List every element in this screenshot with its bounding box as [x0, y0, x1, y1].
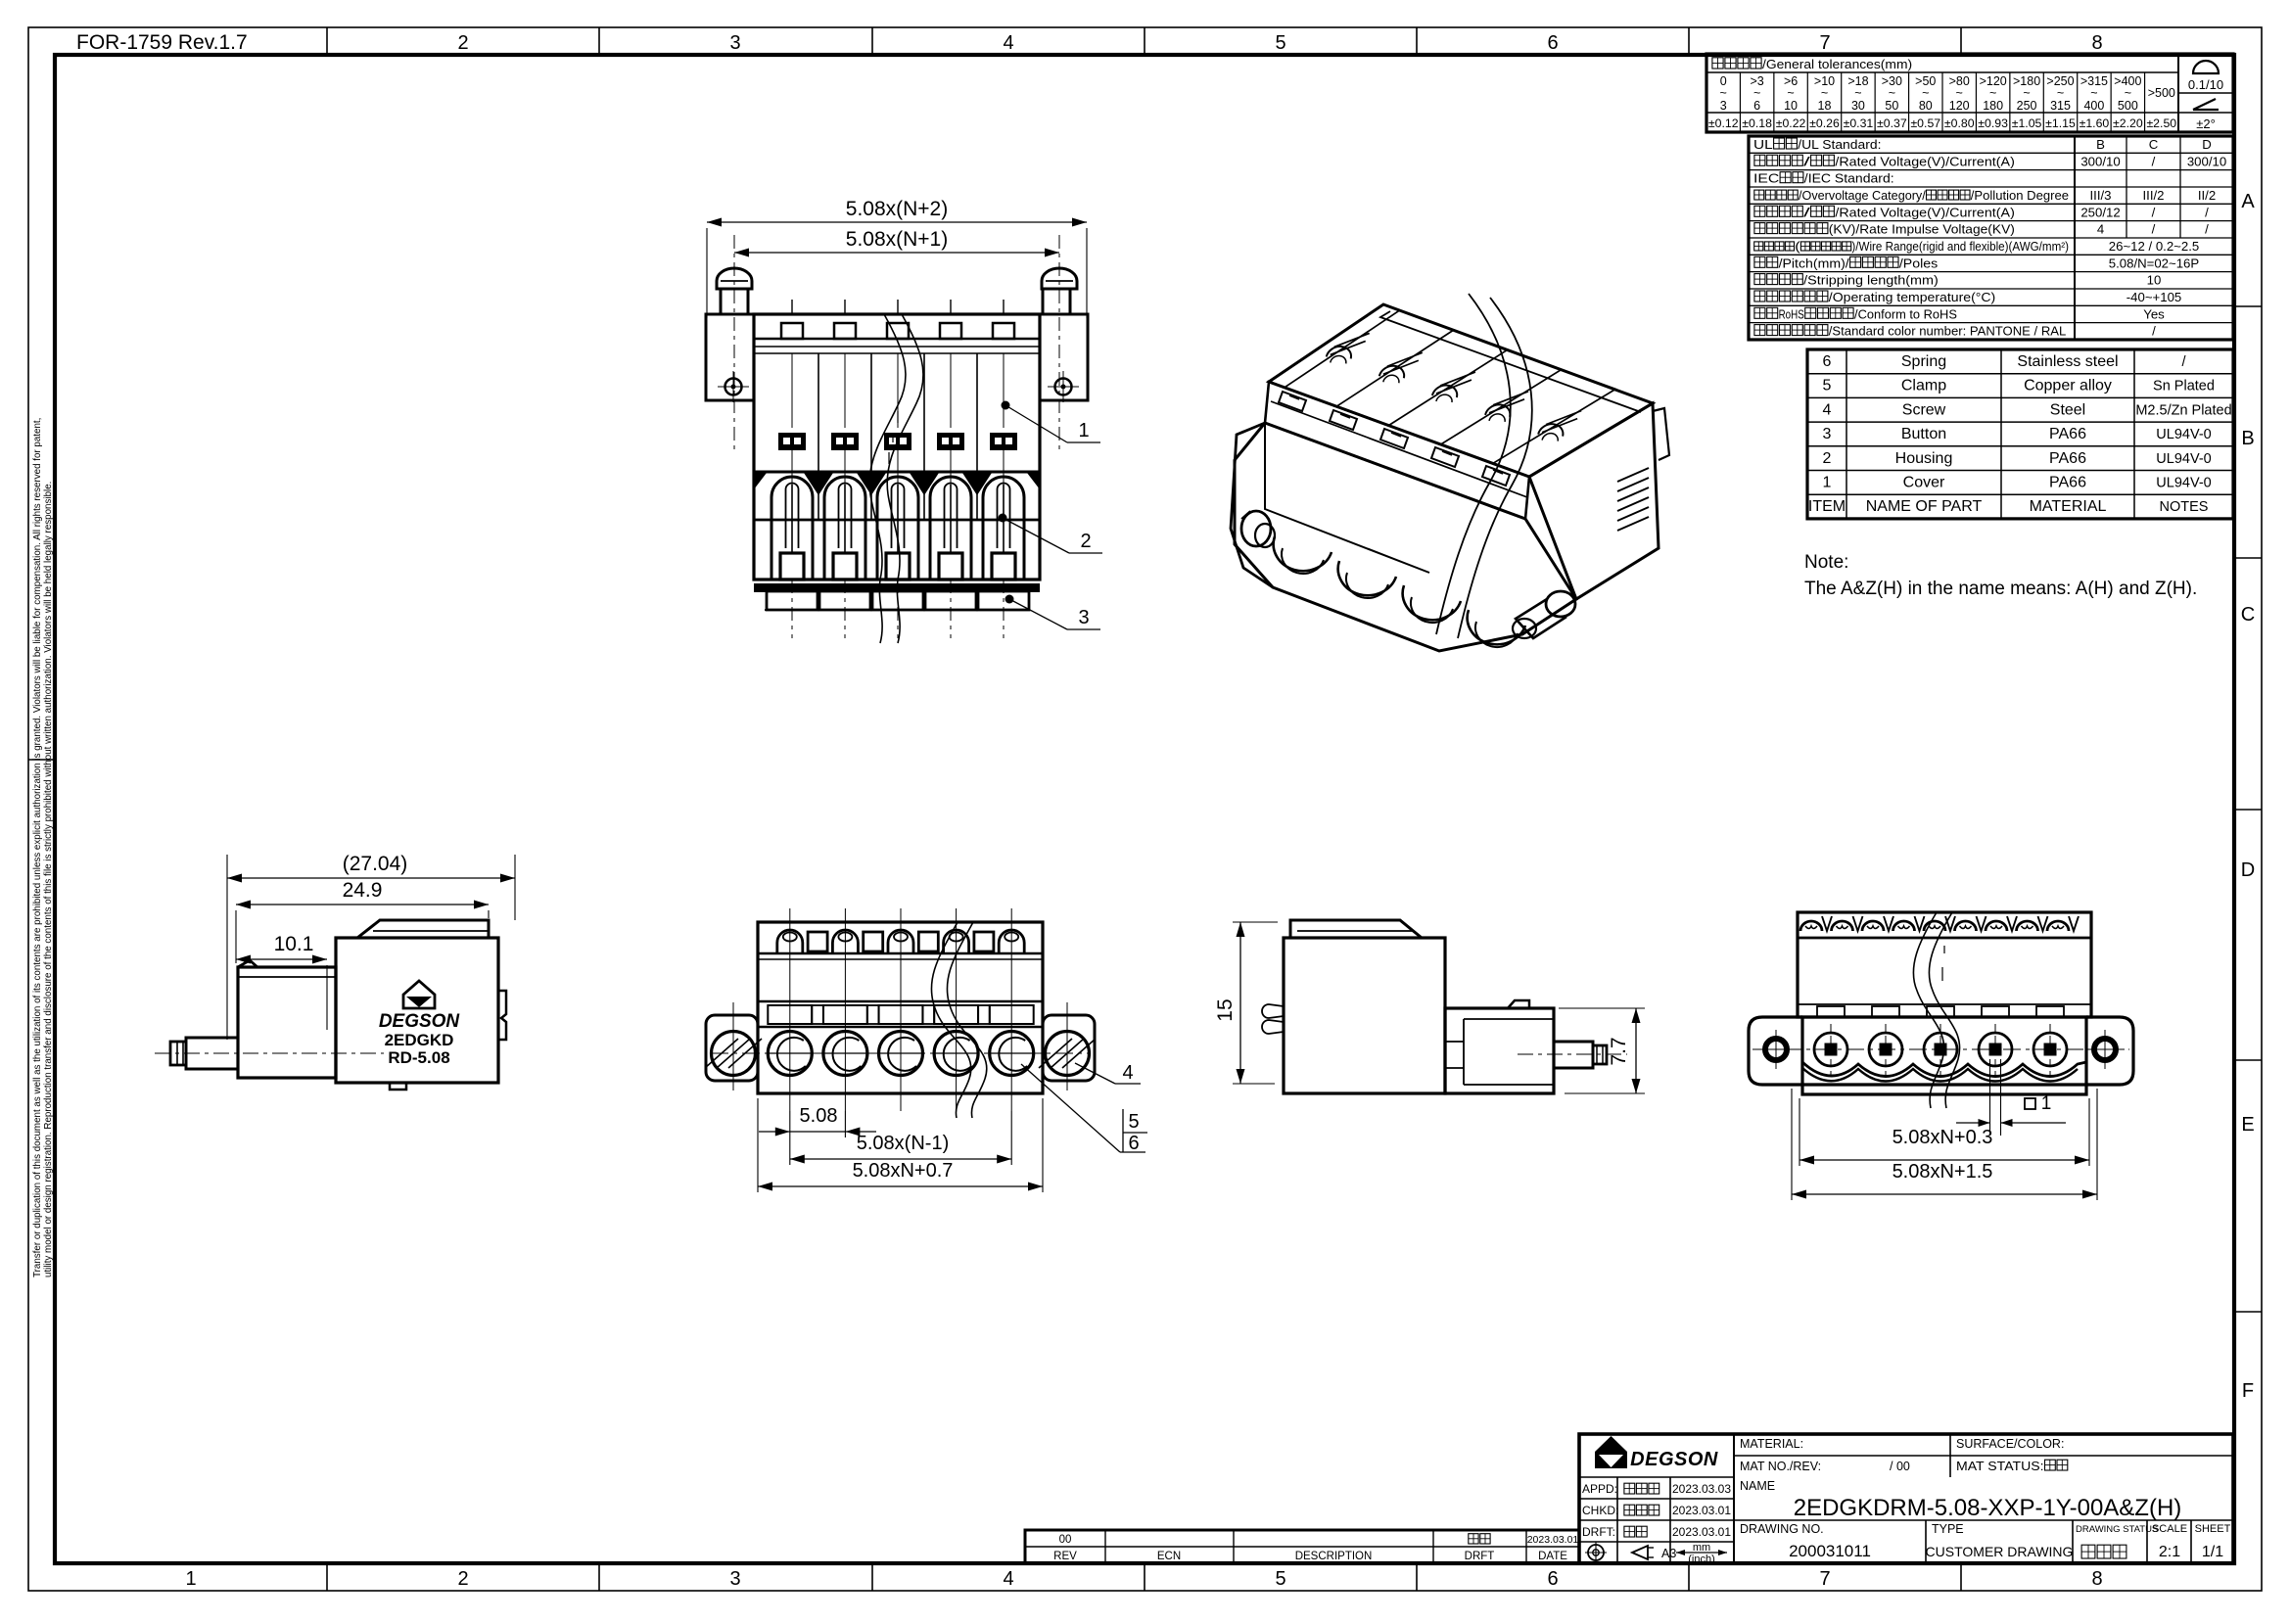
svg-text:2023.03.01: 2023.03.01	[1672, 1504, 1731, 1517]
svg-text:DRAWING STATUS: DRAWING STATUS	[2076, 1524, 2158, 1535]
svg-text:Yes: Yes	[2143, 306, 2165, 321]
svg-text:UL94V-0: UL94V-0	[2156, 451, 2211, 467]
svg-text:~: ~	[1989, 86, 1996, 100]
svg-text:Note:: Note:	[1804, 552, 1848, 573]
svg-text:1: 1	[1823, 475, 1832, 491]
svg-text:TYPE: TYPE	[1932, 1522, 1964, 1536]
svg-text:DEGSON: DEGSON	[1630, 1449, 1718, 1470]
svg-text:DESCRIPTION: DESCRIPTION	[1295, 1551, 1373, 1562]
svg-text:4: 4	[2097, 222, 2104, 237]
svg-text:/Rated Voltage(V)/Current(A): /Rated Voltage(V)/Current(A)	[1835, 205, 2014, 219]
svg-text:±2°: ±2°	[2196, 116, 2216, 131]
svg-text:2: 2	[457, 32, 468, 54]
svg-text:7.7: 7.7	[1608, 1037, 1630, 1065]
svg-text:8: 8	[2091, 32, 2102, 54]
svg-text:6: 6	[1753, 99, 1760, 113]
svg-text:2: 2	[457, 1568, 468, 1590]
svg-text:>500: >500	[2148, 86, 2175, 100]
svg-text:0.1/10: 0.1/10	[2188, 77, 2223, 92]
svg-text:3: 3	[729, 1568, 740, 1590]
svg-text:/Conform to RoHS: /Conform to RoHS	[1854, 306, 1957, 321]
svg-text:8: 8	[2091, 1568, 2102, 1590]
svg-text:250: 250	[2017, 99, 2037, 113]
svg-text:DRFT:: DRFT:	[1582, 1525, 1615, 1539]
svg-text:CUSTOMER DRAWING: CUSTOMER DRAWING	[1926, 1544, 2074, 1559]
svg-text:80: 80	[1919, 99, 1933, 113]
svg-text:SURFACE/COLOR:: SURFACE/COLOR:	[1956, 1437, 2064, 1451]
svg-text:5.08x(N-1): 5.08x(N-1)	[857, 1133, 949, 1154]
svg-text:/General tolerances(mm): /General tolerances(mm)	[1762, 57, 1912, 71]
svg-text:2:1: 2:1	[2159, 1544, 2180, 1560]
svg-text:UL: UL	[1753, 137, 1773, 152]
svg-text:Sn Plated: Sn Plated	[2153, 379, 2215, 394]
svg-text:5.08xN+0.3: 5.08xN+0.3	[1893, 1127, 1993, 1148]
svg-text:1: 1	[2041, 1093, 2052, 1114]
svg-text:±0.37: ±0.37	[1877, 116, 1907, 130]
svg-text:7: 7	[1819, 32, 1830, 54]
svg-text:3: 3	[1720, 99, 1727, 113]
svg-text:Cover: Cover	[1903, 475, 1945, 491]
svg-text:5: 5	[1823, 378, 1832, 394]
svg-text:III/3: III/3	[2090, 188, 2112, 203]
svg-text:A: A	[2241, 191, 2255, 212]
svg-text:±1.60: ±1.60	[2080, 116, 2110, 130]
svg-text:/Operating temperature(°C): /Operating temperature(°C)	[1829, 290, 1995, 304]
svg-text:±2.20: ±2.20	[2113, 116, 2143, 130]
svg-text:-40~+105: -40~+105	[2126, 290, 2181, 304]
svg-text:±0.26: ±0.26	[1809, 116, 1840, 130]
svg-text:MAT STATUS:: MAT STATUS:	[1956, 1460, 2044, 1473]
svg-text:/Poles: /Poles	[1899, 255, 1938, 270]
svg-text:NOTES: NOTES	[2160, 499, 2209, 515]
svg-text:DRAWING NO.: DRAWING NO.	[1740, 1522, 1824, 1536]
svg-text:18: 18	[1818, 99, 1832, 113]
svg-text:DEGSON: DEGSON	[379, 1011, 461, 1032]
svg-text:10.1: 10.1	[274, 933, 314, 955]
svg-text:Button: Button	[1901, 426, 1946, 442]
svg-text:4: 4	[1823, 401, 1832, 418]
svg-text:~: ~	[1922, 86, 1929, 100]
svg-text:A3: A3	[1661, 1547, 1676, 1560]
svg-text:3: 3	[1078, 607, 1089, 628]
svg-text:200031011: 200031011	[1789, 1542, 1871, 1560]
svg-text:4: 4	[1003, 1568, 1013, 1590]
svg-text:)/Wire Range(rigid and flexibl: )/Wire Range(rigid and flexible)(AWG/mm²…	[1851, 239, 2069, 254]
svg-text:2: 2	[1823, 450, 1832, 467]
svg-text:5.08xN+0.7: 5.08xN+0.7	[853, 1160, 954, 1182]
svg-text:120: 120	[1949, 99, 1970, 113]
svg-text:7: 7	[1819, 1568, 1830, 1590]
svg-text:5: 5	[1275, 1568, 1285, 1590]
svg-text:00: 00	[1059, 1534, 1072, 1546]
svg-text:3: 3	[1823, 426, 1832, 442]
svg-text:5: 5	[1128, 1111, 1139, 1133]
svg-text:Clamp: Clamp	[1901, 378, 1946, 394]
svg-text:DATE: DATE	[1538, 1551, 1567, 1562]
svg-text:180: 180	[1983, 99, 2003, 113]
svg-text:PA66: PA66	[2049, 475, 2086, 491]
svg-text:APPD:: APPD:	[1582, 1482, 1617, 1496]
svg-text:~: ~	[2023, 86, 2030, 100]
svg-text:PA66: PA66	[2049, 426, 2086, 442]
svg-text:2023.03.01: 2023.03.01	[1527, 1534, 1579, 1546]
svg-text:3: 3	[729, 32, 740, 54]
svg-text:10: 10	[1784, 99, 1798, 113]
svg-text:50: 50	[1885, 99, 1898, 113]
svg-text:C: C	[2241, 604, 2255, 626]
svg-text:±1.05: ±1.05	[2012, 116, 2042, 130]
svg-text:M2.5/Zn Plated: M2.5/Zn Plated	[2135, 402, 2231, 418]
svg-text:The A&Z(H) in the name means:: The A&Z(H) in the name means: A(H) and Z…	[1804, 579, 2197, 599]
svg-text:~: ~	[2057, 86, 2064, 100]
svg-text:F: F	[2242, 1380, 2254, 1402]
svg-text:2EDGKDRM-5.08-XXP-1Y-00A&Z(H): 2EDGKDRM-5.08-XXP-1Y-00A&Z(H)	[1794, 1495, 2182, 1521]
svg-text:1: 1	[1078, 420, 1089, 441]
svg-text:/UL Standard:: /UL Standard:	[1798, 137, 1881, 152]
svg-text:D: D	[2241, 859, 2255, 881]
svg-text:300/10: 300/10	[2187, 154, 2226, 168]
svg-text:5.08/N=02~16P: 5.08/N=02~16P	[2109, 255, 2200, 270]
svg-text:NAME OF PART: NAME OF PART	[1866, 498, 1983, 515]
svg-text:B: B	[2096, 137, 2105, 152]
svg-text:±0.31: ±0.31	[1844, 116, 1874, 130]
svg-text:/Pitch(mm)/: /Pitch(mm)/	[1779, 255, 1850, 270]
svg-text:/Rated Voltage(V)/Current(A): /Rated Voltage(V)/Current(A)	[1835, 154, 2014, 168]
svg-text:5.08xN+1.5: 5.08xN+1.5	[1893, 1161, 1993, 1183]
svg-text:26~12 / 0.2~2.5: 26~12 / 0.2~2.5	[2109, 239, 2199, 254]
svg-text:/: /	[2152, 222, 2156, 237]
svg-text:(: (	[1795, 239, 1800, 254]
svg-text:/: /	[2205, 222, 2209, 237]
svg-text:5.08x(N+1): 5.08x(N+1)	[846, 228, 948, 251]
svg-text:Steel: Steel	[2050, 401, 2085, 418]
svg-text:300/10: 300/10	[2080, 154, 2120, 168]
svg-text:4: 4	[1122, 1062, 1133, 1084]
svg-text:/: /	[2205, 205, 2209, 219]
svg-text:5.08: 5.08	[800, 1105, 838, 1127]
svg-text:~: ~	[1787, 86, 1794, 100]
svg-text:C: C	[2149, 137, 2159, 152]
svg-text:±0.57: ±0.57	[1910, 116, 1940, 130]
svg-text:mm: mm	[1693, 1542, 1710, 1554]
svg-text:D: D	[2202, 137, 2212, 152]
svg-text:(27.04): (27.04)	[343, 853, 408, 875]
svg-text:II/2: II/2	[2198, 188, 2216, 203]
svg-text:6: 6	[1547, 1568, 1558, 1590]
svg-text:SCALE: SCALE	[2152, 1523, 2187, 1535]
svg-text:6: 6	[1823, 353, 1832, 370]
svg-text:Spring: Spring	[1901, 353, 1946, 370]
svg-text:B: B	[2241, 428, 2254, 449]
svg-text:24.9: 24.9	[343, 879, 383, 902]
svg-text:MAT NO./REV:: MAT NO./REV:	[1740, 1460, 1821, 1473]
svg-text:CHKD:: CHKD:	[1582, 1504, 1618, 1517]
svg-text:III/2: III/2	[2143, 188, 2165, 203]
svg-text:Stainless steel: Stainless steel	[2017, 353, 2118, 370]
svg-text:RD-5.08: RD-5.08	[388, 1048, 449, 1067]
svg-text:/: /	[1803, 205, 1810, 219]
svg-text:/: /	[1803, 154, 1810, 168]
svg-text:PA66: PA66	[2049, 450, 2086, 467]
svg-text:~: ~	[1753, 86, 1760, 100]
svg-text:15: 15	[1214, 998, 1237, 1021]
svg-text:6: 6	[1128, 1133, 1139, 1154]
svg-text:/Pollution Degree: /Pollution Degree	[1971, 188, 2069, 203]
svg-text:(KV)/Rate Impulse Voltage(KV): (KV)/Rate Impulse Voltage(KV)	[1829, 222, 2015, 237]
svg-text:±1.15: ±1.15	[2045, 116, 2076, 130]
svg-text:RoHS: RoHS	[1779, 306, 1804, 321]
svg-text:FOR-1759 Rev.1.7: FOR-1759 Rev.1.7	[76, 31, 248, 54]
svg-text:ECN: ECN	[1157, 1551, 1181, 1562]
svg-text:UL94V-0: UL94V-0	[2156, 427, 2211, 442]
svg-text:±0.80: ±0.80	[1944, 116, 1975, 130]
svg-text:~: ~	[1956, 86, 1963, 100]
svg-text:±0.18: ±0.18	[1742, 116, 1772, 130]
svg-text:DRFT: DRFT	[1465, 1551, 1495, 1562]
svg-text:250/12: 250/12	[2080, 205, 2120, 219]
svg-text:Housing: Housing	[1895, 450, 1953, 467]
svg-text:utility model or design regist: utility model or design registration. Re…	[43, 482, 54, 1277]
svg-text:Screw: Screw	[1902, 401, 1946, 418]
svg-text:5: 5	[1275, 32, 1285, 54]
svg-text:6: 6	[1547, 32, 1558, 54]
svg-text:/: /	[2152, 324, 2156, 339]
svg-text:2: 2	[1080, 531, 1091, 552]
svg-text:±0.93: ±0.93	[1978, 116, 2008, 130]
svg-text:MATERIAL: MATERIAL	[2030, 498, 2107, 515]
svg-text:±2.50: ±2.50	[2146, 116, 2176, 130]
svg-text:REV: REV	[1053, 1551, 1077, 1562]
svg-text:4: 4	[1003, 32, 1013, 54]
svg-text:2023.03.03: 2023.03.03	[1672, 1482, 1731, 1496]
svg-text:/Standard color number: PANTON: /Standard color number: PANTONE / RAL	[1829, 324, 2067, 339]
svg-text:1: 1	[185, 1568, 196, 1590]
svg-text:5.08x(N+2): 5.08x(N+2)	[846, 198, 948, 220]
svg-text:NAME: NAME	[1740, 1479, 1775, 1493]
svg-text:30: 30	[1851, 99, 1865, 113]
svg-text:1/1: 1/1	[2202, 1544, 2223, 1560]
svg-text:/Stripping length(mm): /Stripping length(mm)	[1803, 273, 1939, 288]
svg-text:SHEET: SHEET	[2195, 1523, 2231, 1535]
svg-text:ITEM: ITEM	[1808, 498, 1846, 515]
svg-text:10: 10	[2147, 273, 2162, 288]
svg-text:2023.03.01: 2023.03.01	[1672, 1525, 1731, 1539]
svg-text:MATERIAL:: MATERIAL:	[1740, 1437, 1803, 1451]
svg-text:±0.22: ±0.22	[1776, 116, 1806, 130]
svg-text:~: ~	[1720, 86, 1727, 100]
svg-text:~: ~	[2090, 86, 2097, 100]
svg-text:/Overvoltage Category/: /Overvoltage Category/	[1799, 188, 1926, 203]
svg-text:Transfer or duplication of thi: Transfer or duplication of this document…	[32, 418, 43, 1277]
svg-text:~: ~	[2125, 86, 2131, 100]
svg-text:(inch): (inch)	[1688, 1554, 1715, 1565]
svg-text:Copper alloy: Copper alloy	[2024, 378, 2112, 394]
svg-text:~: ~	[1821, 86, 1828, 100]
svg-text:~: ~	[1854, 86, 1861, 100]
svg-text:/ 00: / 00	[1890, 1460, 1910, 1473]
svg-text:IEC: IEC	[1753, 171, 1779, 186]
svg-text:~: ~	[1889, 86, 1895, 100]
svg-text:UL94V-0: UL94V-0	[2156, 476, 2211, 491]
svg-text:/IEC Standard:: /IEC Standard:	[1804, 171, 1894, 186]
svg-text:315: 315	[2050, 99, 2071, 113]
svg-text:400: 400	[2083, 99, 2104, 113]
svg-text:/: /	[2152, 205, 2156, 219]
svg-text:2EDGKD: 2EDGKD	[385, 1031, 454, 1049]
svg-text:±0.12: ±0.12	[1708, 116, 1739, 130]
svg-text:E: E	[2241, 1114, 2254, 1136]
svg-text:500: 500	[2118, 99, 2138, 113]
svg-text:/: /	[2152, 154, 2156, 168]
